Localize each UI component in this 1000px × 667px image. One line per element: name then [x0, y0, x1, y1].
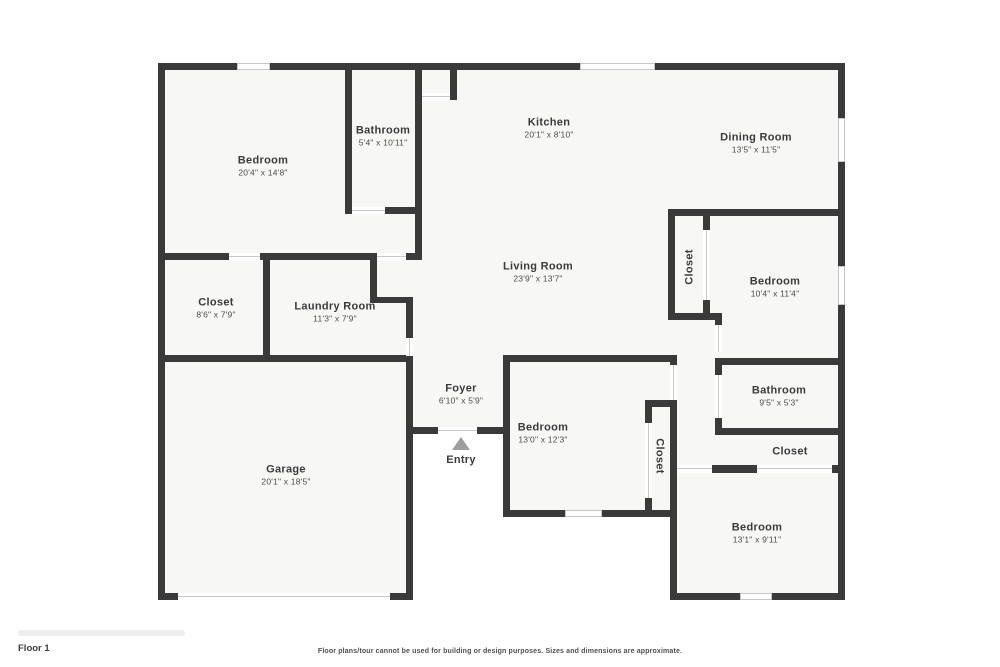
room-dimensions: 6'10" x 5'9"	[439, 396, 483, 406]
room-label: Bathroom9'5" x 5'3"	[752, 384, 806, 407]
wall	[772, 593, 845, 600]
room-dimensions: 9'5" x 5'3"	[752, 398, 806, 408]
door-opening	[715, 375, 722, 418]
room-label: Living Room23'9" x 13'7"	[503, 260, 573, 283]
room-label: Bathroom5'4" x 10'11"	[356, 124, 410, 147]
room-name: Closet	[684, 249, 697, 284]
room-label: Closet	[684, 249, 697, 284]
wall	[158, 63, 165, 600]
room-dimensions: 8'6" x 7'9"	[196, 310, 235, 320]
wall	[158, 253, 229, 260]
wall	[260, 253, 377, 260]
entry-door-opening	[438, 427, 477, 434]
room-label: Bedroom20'4" x 14'8"	[238, 154, 288, 177]
wall	[655, 63, 845, 70]
door-opening	[715, 325, 722, 352]
wall	[715, 358, 845, 365]
wall	[703, 216, 710, 230]
door-opening	[352, 207, 385, 214]
room-dimensions: 23'9" x 13'7"	[503, 274, 573, 284]
wall	[838, 63, 845, 118]
room-name: Closet	[772, 446, 807, 459]
wall	[645, 400, 652, 423]
wall	[602, 510, 677, 517]
wall	[715, 365, 722, 375]
room-name: Bedroom	[732, 521, 782, 534]
room-label: Bedroom13'0" x 12'3"	[518, 421, 568, 444]
door-opening	[229, 253, 260, 260]
wall	[406, 356, 413, 600]
room-name: Bathroom	[356, 124, 410, 137]
closet-door	[703, 230, 710, 300]
wall	[668, 313, 722, 320]
room-label: Bedroom13'1" x 9'11"	[732, 521, 782, 544]
wall	[715, 313, 722, 325]
wall	[270, 63, 580, 70]
wall	[715, 428, 845, 435]
room-name: Bathroom	[752, 384, 806, 397]
room-label: Foyer6'10" x 5'9"	[439, 382, 483, 405]
wall	[450, 66, 457, 100]
wall	[415, 63, 422, 260]
room-dimensions: 13'1" x 9'11"	[732, 535, 782, 545]
wall	[406, 297, 413, 338]
room-name: Kitchen	[524, 116, 573, 129]
wall	[712, 465, 757, 473]
room-label: Bedroom10'4" x 11'4"	[750, 275, 800, 298]
room-dimensions: 13'0" x 12'3"	[518, 435, 568, 445]
room-name: Closet	[653, 438, 666, 473]
window	[580, 63, 655, 70]
wall	[158, 63, 237, 70]
wall	[838, 305, 845, 600]
door-opening	[422, 93, 450, 100]
room-name: Bedroom	[238, 154, 288, 167]
room-name: Laundry Room	[294, 300, 375, 313]
room-name: Garage	[261, 463, 310, 476]
room-name: Bedroom	[750, 275, 800, 288]
floor-plan-page: Bedroom20'4" x 14'8"Bathroom5'4" x 10'11…	[0, 0, 1000, 667]
window	[237, 63, 270, 70]
closet-door	[645, 423, 652, 498]
wall	[503, 510, 565, 517]
room-label: Garage20'1" x 18'5"	[261, 463, 310, 486]
door-opening	[677, 465, 712, 473]
wall	[670, 355, 677, 365]
window	[838, 266, 845, 305]
room-dimensions: 20'4" x 14'8"	[238, 168, 288, 178]
room-dimensions: 20'1" x 8'10"	[524, 130, 573, 140]
garage-door	[178, 593, 390, 600]
room-name: Living Room	[503, 260, 573, 273]
wall	[670, 593, 740, 600]
window	[565, 510, 602, 517]
wall	[158, 355, 406, 362]
room-label: Laundry Room11'3" x 7'9"	[294, 300, 375, 323]
room-dimensions: 11'3" x 7'9"	[294, 314, 375, 324]
room-label: Closet	[772, 446, 807, 459]
wall	[715, 418, 722, 435]
room-label: Dining Room13'5" x 11'5"	[720, 131, 792, 154]
door-opening	[406, 338, 413, 356]
floor-plan: Bedroom20'4" x 14'8"Bathroom5'4" x 10'11…	[0, 0, 1000, 667]
wall	[832, 465, 845, 473]
room-dimensions: 10'4" x 11'4"	[750, 289, 800, 299]
room-name: Bedroom	[518, 421, 568, 434]
room-label: Closet	[653, 438, 666, 473]
window	[740, 593, 772, 600]
wall	[645, 498, 652, 517]
wall	[263, 253, 270, 362]
room-dimensions: 5'4" x 10'11"	[356, 138, 410, 148]
wall	[503, 355, 510, 517]
wall	[703, 300, 710, 313]
wall	[503, 355, 677, 362]
room-label: Kitchen20'1" x 8'10"	[524, 116, 573, 139]
room-name: Closet	[196, 296, 235, 309]
room-dimensions: 13'5" x 11'5"	[720, 145, 792, 155]
entry-label: Entry	[446, 454, 476, 466]
disclaimer-text: Floor plans/tour cannot be used for buil…	[0, 648, 1000, 655]
window	[838, 118, 845, 162]
exterior-notch	[503, 517, 670, 600]
wall	[670, 400, 677, 600]
closet-door	[757, 465, 832, 473]
entry-arrow-icon	[452, 437, 470, 450]
room-label: Closet8'6" x 7'9"	[196, 296, 235, 319]
wall	[668, 209, 845, 216]
room-name: Dining Room	[720, 131, 792, 144]
wall	[345, 63, 352, 214]
room-dimensions: 20'1" x 18'5"	[261, 477, 310, 487]
wall	[158, 593, 178, 600]
door-opening	[670, 365, 677, 400]
wall	[668, 209, 675, 320]
scroll-hint-bar	[18, 630, 185, 636]
wall	[370, 253, 377, 303]
room-name: Foyer	[439, 382, 483, 395]
door-opening	[377, 253, 406, 260]
